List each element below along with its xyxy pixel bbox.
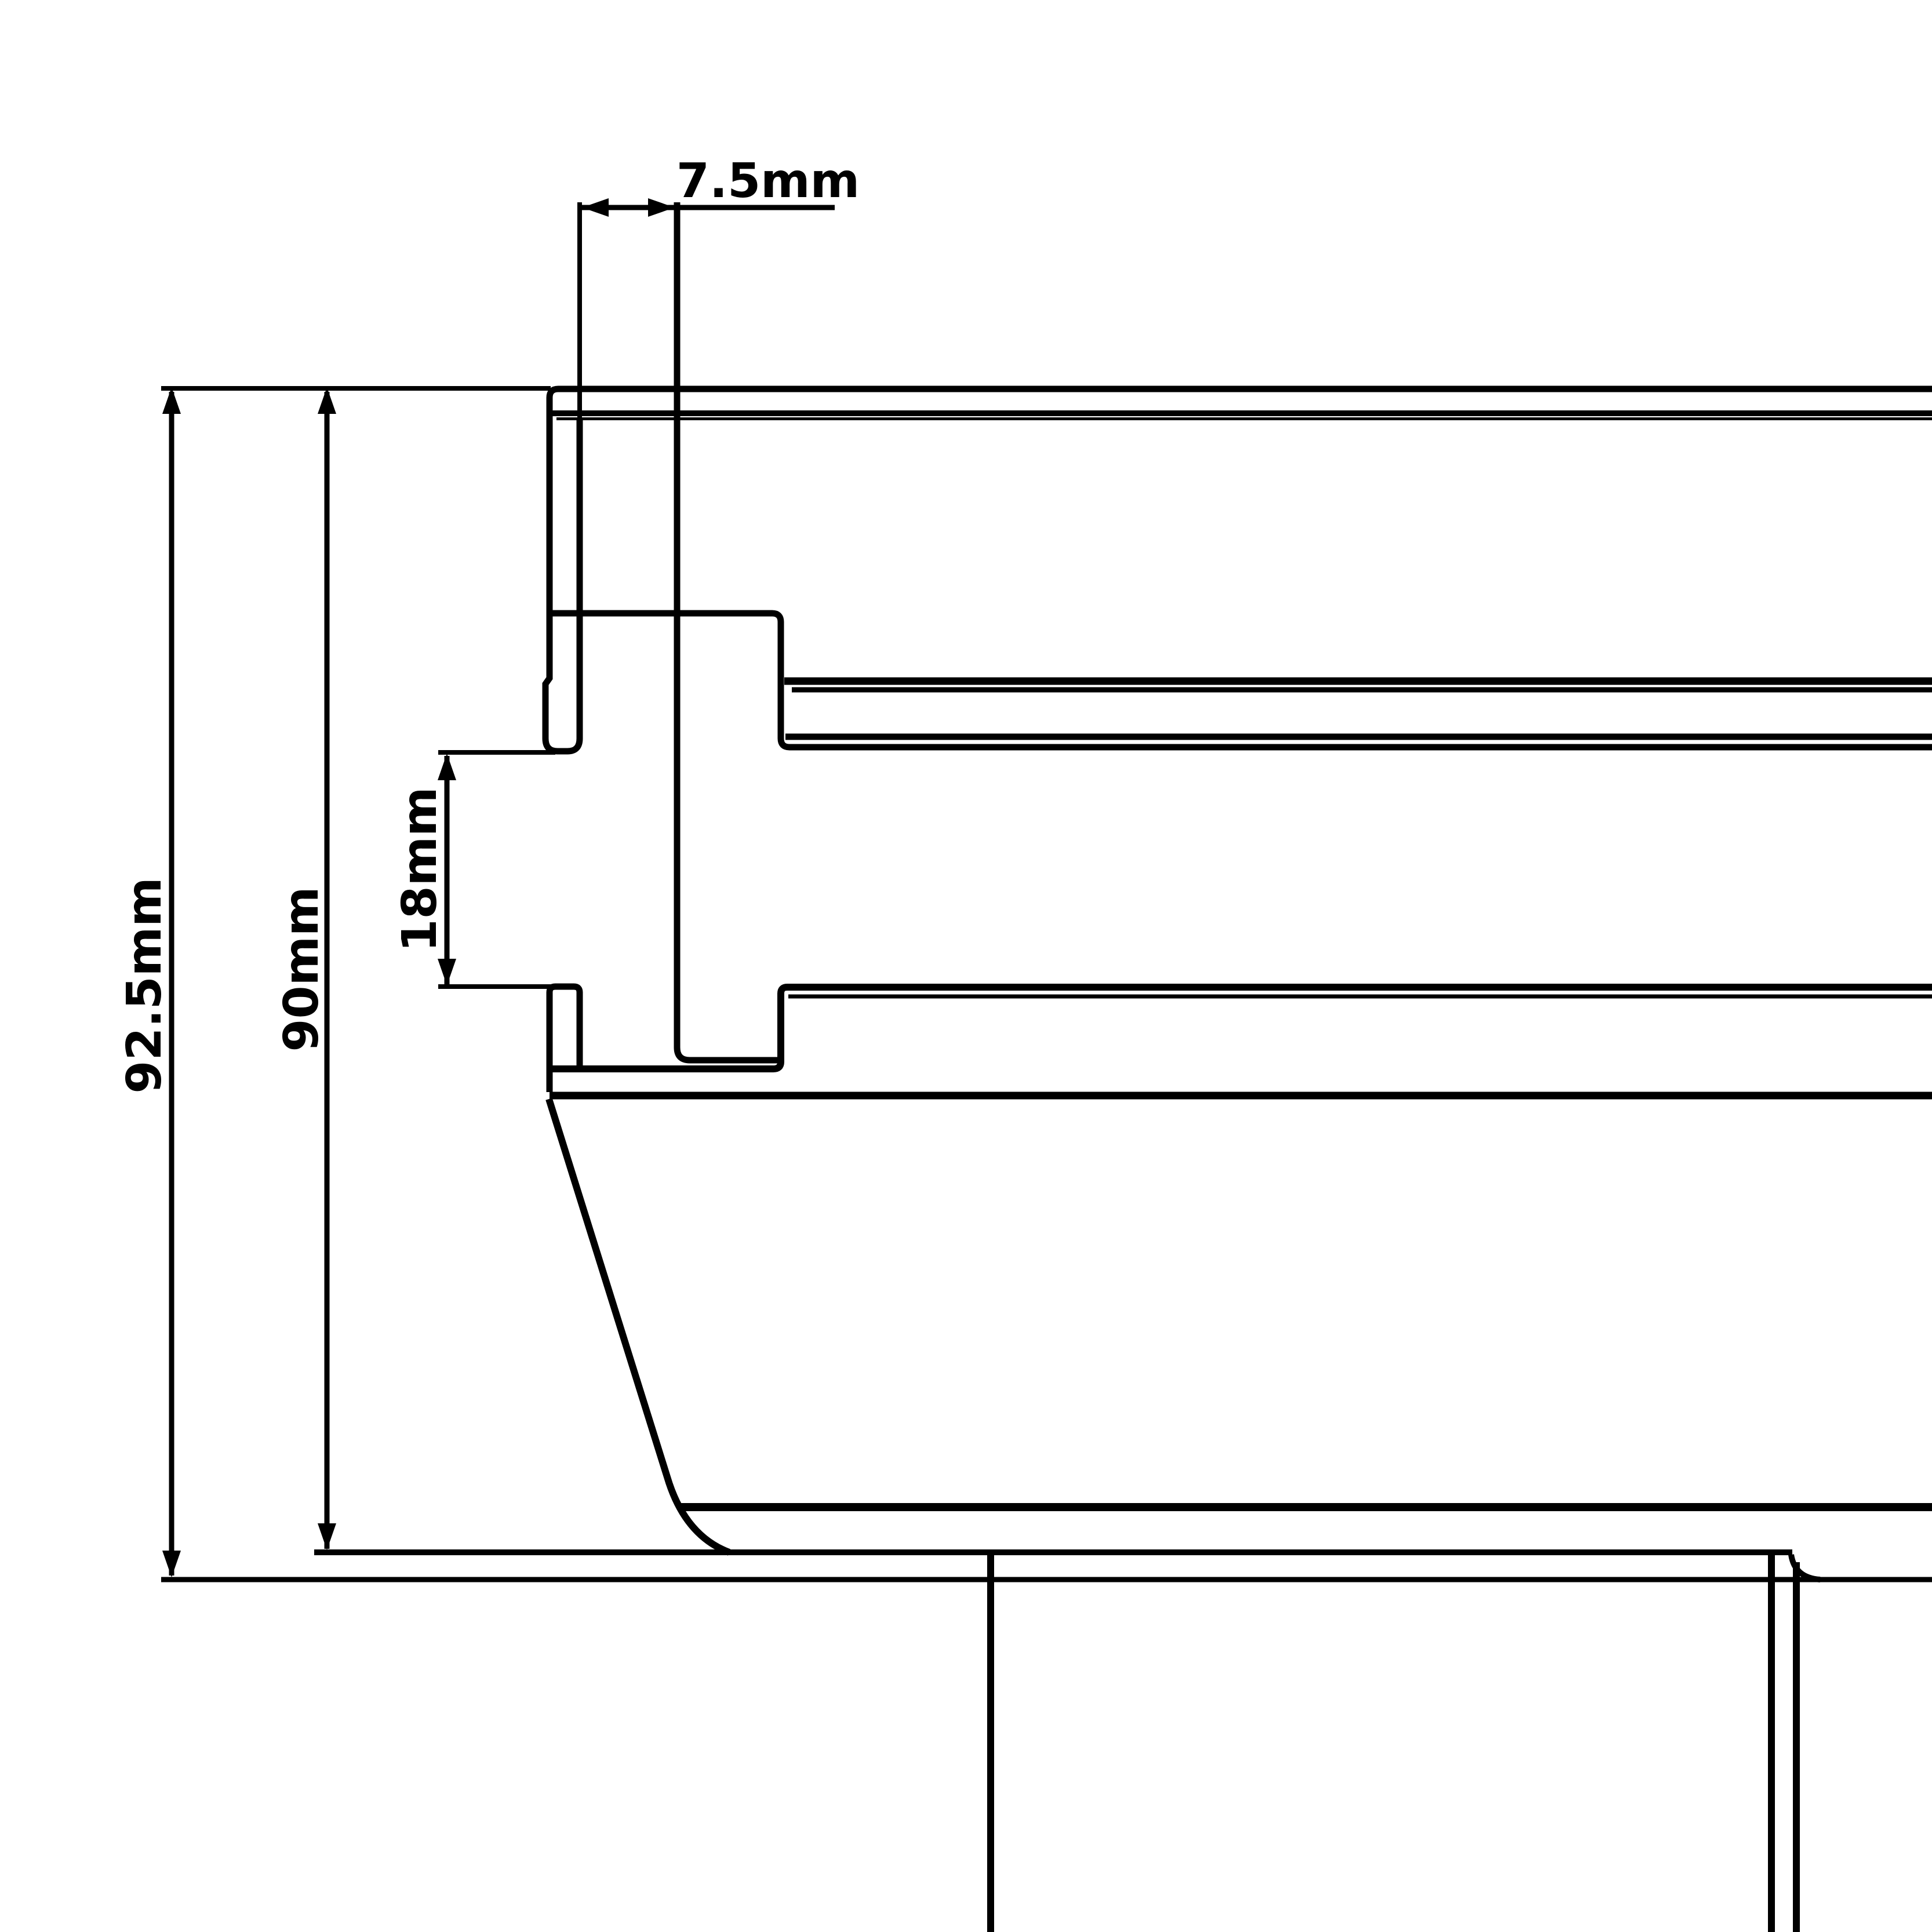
dimension-label-92-5mm: 92.5mm bbox=[117, 877, 172, 1093]
drawing-canvas: 7.5mm 92.5mm 90mm 18mm bbox=[0, 0, 1932, 1932]
dimension-label-18mm: 18mm bbox=[392, 787, 447, 952]
dimension-label-90mm: 90mm bbox=[274, 887, 329, 1052]
technical-drawing-svg: 7.5mm 92.5mm 90mm 18mm bbox=[0, 0, 1932, 1932]
dimension-label-7-5mm: 7.5mm bbox=[676, 154, 860, 209]
